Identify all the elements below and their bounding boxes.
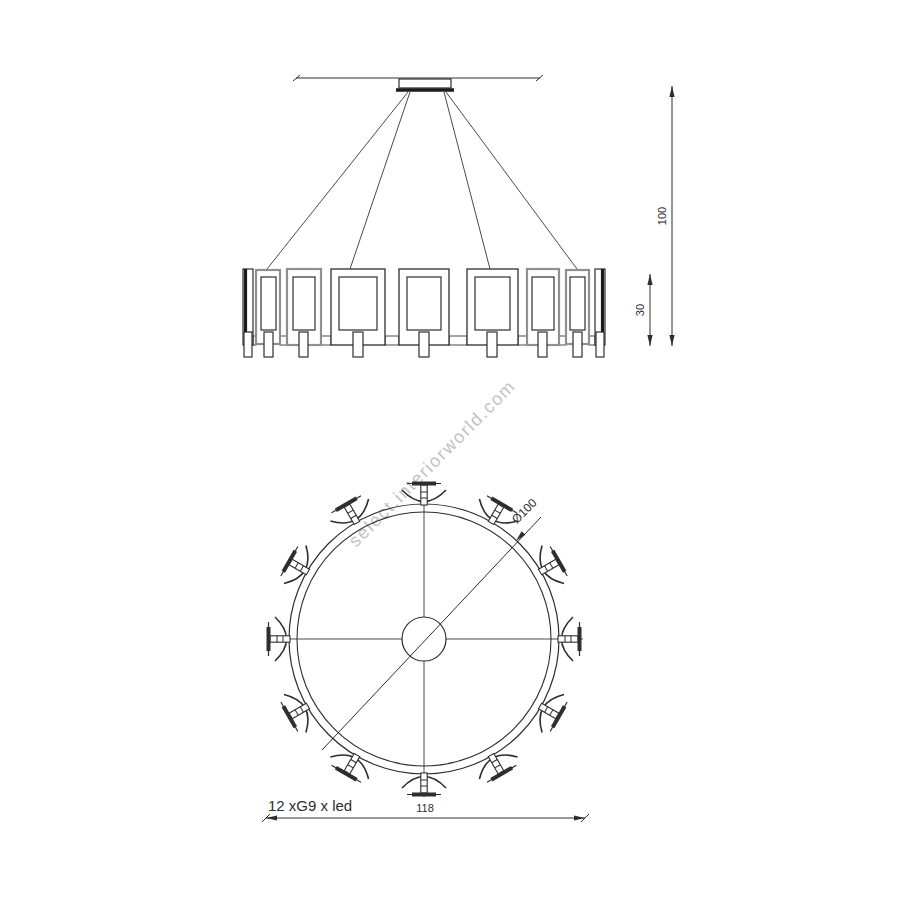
- dim-label-30: 30: [634, 304, 646, 316]
- ceiling-canopy: [396, 79, 454, 90]
- bulb-assembly: [558, 617, 580, 661]
- dim-label-100: 100: [656, 207, 668, 225]
- dimension-ring-height: 30: [634, 274, 650, 346]
- bulb-assembly: [327, 744, 376, 785]
- plan-view: Ø100 118 12 xG9 x led: [262, 484, 589, 823]
- elevation-view: 100 30: [243, 75, 672, 357]
- dimension-total-height: 100: [656, 86, 672, 346]
- center-hub: [402, 617, 446, 661]
- bulb-assembly: [529, 542, 570, 591]
- bulb-assembly: [529, 687, 570, 736]
- ring-band-elevation: [243, 269, 605, 357]
- dim-label-118: 118: [416, 802, 434, 814]
- bulb-spec-label: 12 xG9 x led: [268, 797, 352, 814]
- technical-drawing-chandelier: select.interiorworld.com: [0, 0, 900, 900]
- drawing-canvas: select.interiorworld.com: [0, 0, 900, 900]
- bulb-assembly: [472, 744, 521, 785]
- bulb-assembly: [269, 617, 291, 661]
- bulb-assembly: [402, 773, 446, 795]
- suspension-cables: [267, 92, 577, 269]
- bulb-assembly: [278, 542, 319, 591]
- bulb-assembly: [278, 687, 319, 736]
